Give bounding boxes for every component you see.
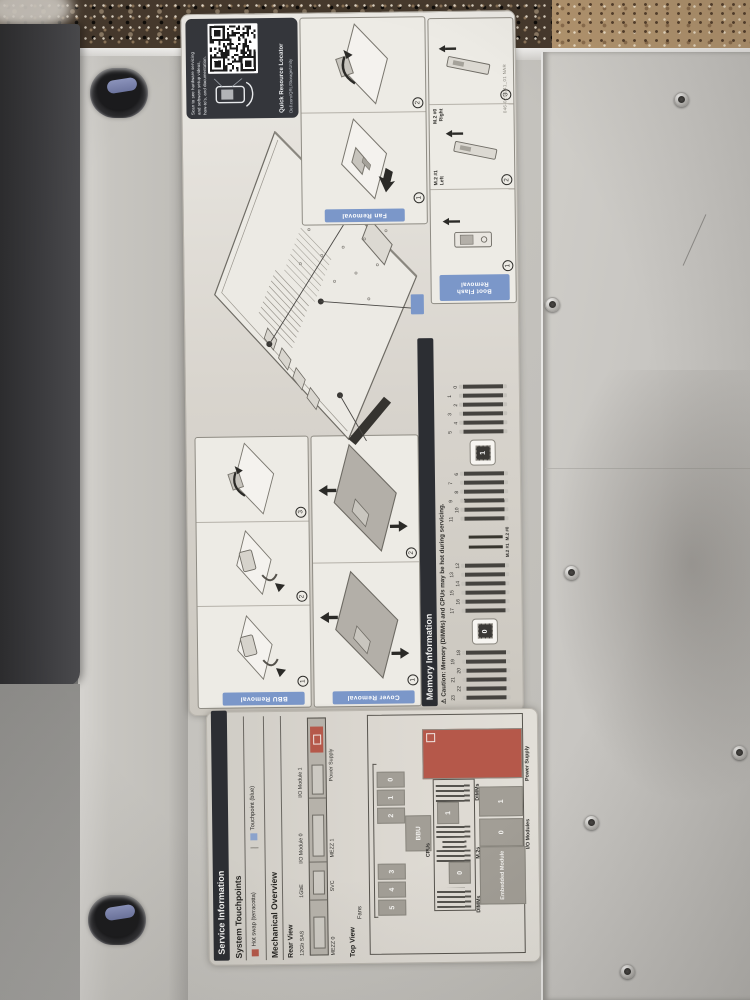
dimm-slot: [459, 430, 507, 435]
fan-box: 5: [378, 899, 406, 915]
rear-segment: [309, 797, 326, 798]
dimm-slot: [460, 481, 508, 486]
rear-power-supply-highlight: [310, 726, 323, 752]
dimm-number: 8: [454, 491, 460, 494]
divider: [280, 716, 284, 960]
dimm-slot: [461, 599, 509, 604]
dimm-group: 171615141312: [449, 561, 510, 615]
rear-view-header: Rear View: [287, 924, 294, 957]
cover-removal-panel: Cover Removal 1 2: [310, 434, 421, 707]
boot-flash-tab-line1: Boot Flash: [442, 287, 508, 295]
dimm-slot-col: 11: [448, 515, 508, 524]
rear-port-label: 12Gb SAS: [300, 931, 306, 956]
qr-text-line: Scan to see hardware servicing: [190, 52, 196, 115]
rear-module: [312, 814, 325, 856]
fan-box: 4: [378, 881, 406, 897]
dimm-slot-col: 4: [447, 419, 507, 428]
dimm-slot: [460, 490, 508, 495]
dimm-slot-col: 14: [449, 579, 509, 588]
dimm-number: 11: [448, 517, 454, 522]
board-diagram: 0 1: [433, 779, 477, 912]
fan-step-1: 1: [302, 112, 427, 208]
dimm-number: 17: [450, 608, 456, 614]
dimm-slot-col: 16: [449, 597, 509, 606]
rear-port-label: MEZZ 1: [329, 838, 335, 857]
legend-divider: [250, 847, 258, 848]
quick-resource-locator-panel: Scan to see hardware servicing and softw…: [185, 18, 298, 119]
rear-module: [313, 916, 325, 948]
dimm-number: 16: [455, 599, 461, 605]
rear-view-diagram: [307, 717, 329, 955]
hot-swap-legend: Hot swap (terracotta): [251, 892, 258, 946]
dimm-number: 7: [448, 482, 454, 485]
rear-module: [313, 870, 325, 894]
dimm-slot-col: 20: [450, 666, 510, 675]
dimm-slot-col: 19: [450, 657, 510, 666]
fans-row: 543210: [377, 771, 407, 915]
rear-segment: [310, 861, 327, 862]
memory-caution-text: Caution: Memory (DIMMs) and CPUs may be …: [438, 503, 447, 696]
step-number: 2: [412, 97, 423, 108]
top-view-diagram: 543210 BBU CPUs 0 1 DIMMs M.2s DIMMs: [367, 713, 526, 955]
dimm-slot-col: 9: [448, 497, 508, 506]
dimm-slot: [460, 508, 508, 513]
m2-stripes: [442, 840, 466, 848]
boot-step3-art: [430, 20, 511, 102]
cpu-number: 1: [475, 445, 490, 460]
io-module-1-box: 1: [479, 786, 523, 817]
dimm-number: 15: [449, 590, 455, 596]
dimm-number: 6: [454, 473, 460, 476]
service-information-title: Service Information: [211, 711, 230, 961]
screw-icon: [674, 92, 689, 107]
dimm-number: 9: [448, 500, 454, 503]
photo-scene: BBU Removal 1 2 3: [0, 0, 750, 1000]
dimm-slot-col: 5: [447, 428, 507, 437]
dimm-number: 23: [451, 695, 457, 701]
cpu-chip-icon: 0: [472, 618, 498, 644]
power-supply-box: [422, 728, 523, 779]
memory-caution: ⚠ Caution: Memory (DIMMs) and CPUs may b…: [438, 503, 447, 704]
step-number: 1: [407, 674, 418, 685]
dimm-slot: [459, 421, 507, 426]
bbu-step-1: 1: [198, 606, 311, 691]
dimm-bank-diagram: 2322212019180171615141312M.2 #1M.2 #0111…: [446, 345, 520, 702]
dimm-stripes: [436, 784, 470, 802]
dimm-slot: [459, 385, 507, 390]
dimm-slot: [462, 677, 510, 682]
boot-step-1: 1: [430, 189, 515, 275]
rear-top-labels: 12Gb SAS1GbEI/O Module 0I/O Module 1: [297, 720, 308, 956]
boot-flash-callout-chip: [411, 294, 424, 314]
m2-stick: [469, 545, 503, 548]
dimm-number: 1: [447, 395, 453, 398]
dimm-group: 11109876: [448, 470, 509, 524]
dimm-slot: [460, 517, 508, 522]
dimm-stripes: [437, 850, 471, 862]
dimm-slot-col: 3: [447, 410, 507, 419]
dimm-slot-col: 13: [449, 570, 509, 579]
dimm-number: 22: [457, 686, 463, 692]
power-supply-label: Power Supply: [524, 746, 530, 781]
rear-port-label: SVC: [330, 880, 336, 891]
cpu-number: 0: [477, 624, 492, 639]
dimm-slot-col: 17: [450, 606, 510, 615]
service-information-content: Service Information System Touchpoints H…: [206, 708, 541, 966]
bbu-removal-tab: BBU Removal: [223, 692, 305, 706]
dimm-slot-col: 22: [451, 684, 511, 693]
warning-icon: ⚠: [441, 698, 448, 704]
dimm-number: 2: [453, 404, 459, 407]
rear-port-label: 1GbE: [299, 884, 305, 898]
dimm-slot-col: 1: [447, 392, 507, 401]
divider: [263, 716, 267, 960]
dimm-number: 20: [456, 668, 462, 674]
dimm-number: 4: [453, 422, 459, 425]
m2-stick: [469, 535, 503, 538]
screw-icon: [620, 964, 635, 979]
m2-0-label: M.2 #0: [505, 527, 510, 541]
dimm-slot: [462, 650, 510, 655]
step-number: 2: [406, 547, 417, 558]
dimm-slot: [462, 608, 510, 613]
dimm-slot: [459, 403, 507, 408]
hot-swap-swatch-icon: [252, 949, 259, 956]
dimm-number: 12: [455, 563, 461, 569]
cpus-label: CPUs: [425, 843, 431, 857]
io-module-0-box: 0: [479, 818, 523, 847]
dimm-group: 543210: [447, 383, 508, 437]
dimm-slot-col: 23: [451, 693, 511, 702]
fan-group: 210: [377, 771, 406, 823]
cover-step-1: 1: [313, 562, 421, 689]
touchpoint-legend: Touchpoint (blue): [250, 786, 257, 831]
dimm-slot-col: 21: [450, 675, 510, 684]
dimm-slot: [462, 659, 510, 664]
dimm-slot: [460, 472, 508, 477]
dimm-slot: [463, 695, 511, 700]
touchpoint-swatch-icon: [250, 833, 257, 840]
dimm-slot: [459, 394, 507, 399]
system-touchpoints-header: System Touchpoints: [233, 875, 244, 958]
dimm-stripes: [436, 826, 470, 838]
bbu-step-2: 2: [197, 521, 310, 607]
bbu-step2-art: [199, 523, 308, 604]
qr-code-icon: [207, 23, 258, 74]
dimm-slot: [460, 499, 508, 504]
io-modules-label: I/O Modules: [525, 819, 531, 849]
step-number: 1: [413, 192, 424, 203]
dimm-group: 232221201918: [450, 648, 511, 702]
rear-module: [311, 764, 323, 794]
step-number: 3: [295, 506, 306, 517]
mechanical-overview-header: Mechanical Overview: [269, 872, 280, 958]
qr-text-line: how-to's, and documentation.: [202, 56, 208, 115]
rear-port-label: MEZZ 0: [331, 936, 337, 955]
dimm-slot-col: 15: [449, 588, 509, 597]
dimm-number: 3: [447, 413, 453, 416]
embedded-module-box: Embedded Module: [479, 846, 526, 905]
dimm-slot: [461, 563, 509, 568]
dimm-slot-col: 0: [447, 383, 507, 392]
step-number: 1: [297, 676, 308, 687]
fan-box: 1: [377, 789, 405, 805]
dimm-slot: [462, 668, 510, 673]
boot-step-3: 3: [428, 18, 513, 105]
cpu-chip-icon: 1: [470, 440, 496, 466]
dimm-slot: [463, 686, 511, 691]
dimm-slot-col: 10: [448, 506, 508, 515]
cover-step1-art: [315, 564, 418, 687]
qrl-url: Dell.com/QRL/Storage/Unity: [288, 59, 294, 113]
fan-removal-panel: Fan Removal 1 2: [299, 16, 428, 226]
bbu-step1-art: [200, 608, 309, 689]
dimm-slot: [459, 412, 507, 417]
boot-step-2: M.2 #1 Left M.2 #0 Right 2: [429, 104, 514, 191]
dimm-number: 10: [454, 507, 460, 513]
embedded-module-label: Embedded Module: [499, 851, 506, 900]
dimm-slot-col: 6: [448, 470, 508, 479]
fan-box: 2: [377, 807, 405, 823]
dimm-slot: [461, 590, 509, 595]
service-information-label: Service Information System Touchpoints H…: [206, 710, 539, 966]
dimm-slot-col: 2: [447, 401, 507, 410]
dimm-number: 5: [447, 431, 453, 434]
label-group: BBU Removal 1 2 3: [0, 0, 750, 1000]
boot-step1-art: [432, 191, 513, 273]
dimm-number: 19: [450, 659, 456, 665]
dimm-number: 0: [453, 386, 459, 389]
cover-removal-tab: Cover Removal: [333, 690, 415, 704]
rear-port-label: Power Supply: [328, 749, 334, 782]
boot-flash-removal-tab: Boot Flash Removal: [440, 274, 510, 301]
phone-scanning-icon: [212, 78, 256, 113]
cpu0-box: 0: [449, 862, 471, 884]
fan-removal-tab: Fan Removal: [325, 208, 405, 222]
screw-icon: [732, 745, 747, 760]
boot-flash-tab-line2: Removal: [442, 280, 508, 288]
dimm-slot-col: 8: [448, 488, 508, 497]
dimm-slot: [461, 581, 509, 586]
rear-bottom-labels: MEZZ 0SVCMEZZ 1Power Supply: [328, 719, 339, 955]
m2-sticks: [469, 535, 503, 548]
dimm-slot-col: 12: [449, 561, 509, 570]
rear-segment: [310, 899, 327, 900]
fan-box: 0: [377, 771, 405, 787]
m2-modules: M.2 #1M.2 #0: [469, 527, 510, 558]
cpu1-box: 1: [437, 802, 459, 824]
qrl-title: Quick Resource Locator: [279, 44, 286, 113]
screw-icon: [545, 297, 560, 312]
divider: [243, 716, 247, 960]
service-label-main: BBU Removal 1 2 3: [180, 12, 522, 716]
boot-flash-removal-panel: Boot Flash Removal 1 M.2 #1 Left: [427, 17, 516, 304]
dimm-number: 21: [450, 677, 456, 683]
qr-text-line: and software setup videos,: [196, 61, 202, 115]
fan-group: 543: [378, 863, 407, 915]
top-view-header: Top View: [349, 927, 356, 957]
dimm-slot-col: 18: [450, 648, 510, 657]
dimm-slot: [461, 572, 509, 577]
fan-step-2: 2: [300, 17, 425, 114]
dimm-slot-col: 7: [448, 479, 508, 488]
m2-1-label: M.2 #1: [505, 543, 510, 557]
step-number: 1: [502, 260, 513, 271]
bbu-removal-panel: BBU Removal 1 2 3: [194, 436, 311, 709]
m2-labels: M.2 #1M.2 #0: [505, 527, 510, 558]
dimm-stripes: [437, 888, 471, 908]
rear-port-label: I/O Module 1: [298, 767, 304, 797]
fan-step1-art: [304, 114, 425, 205]
service-label-main-content: BBU Removal 1 2 3: [180, 10, 524, 716]
dimm-number: 14: [455, 581, 461, 587]
dimm-number: 18: [456, 650, 462, 656]
label-part-number: 046-026-041_01 NAR: [502, 64, 508, 113]
screw-icon: [564, 565, 579, 580]
fan-step2-art: [302, 19, 423, 110]
fan-box: 3: [378, 863, 406, 879]
dimm-number: 13: [449, 572, 455, 578]
fans-label: Fans: [357, 906, 363, 919]
rear-port-label: I/O Module 0: [298, 833, 304, 863]
screw-icon: [584, 815, 599, 830]
